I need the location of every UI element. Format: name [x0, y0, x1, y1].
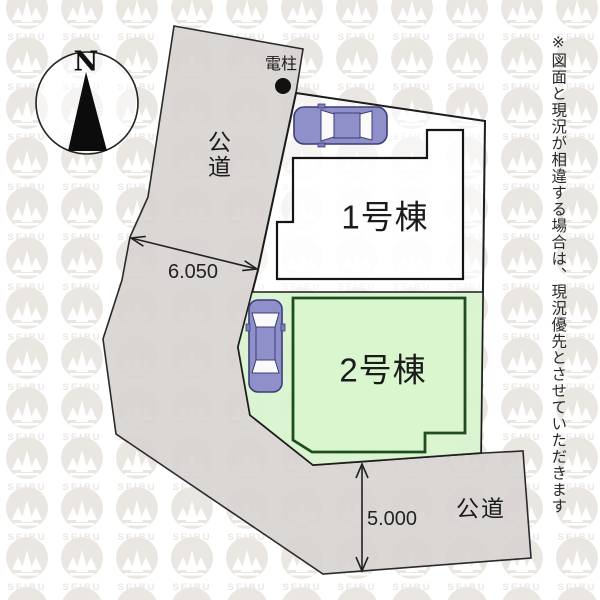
road-left-label: 公道 — [206, 130, 229, 180]
watermark-tile — [6, 487, 48, 543]
watermark-tile — [6, 237, 48, 293]
watermark-tile — [501, 137, 543, 193]
watermark-tile — [116, 0, 158, 43]
watermark-tile — [501, 237, 543, 293]
watermark-tile — [6, 137, 48, 193]
utility-pole-dot — [275, 78, 291, 94]
watermark-tile — [226, 537, 268, 593]
watermark-tile — [501, 287, 543, 343]
car-icon — [294, 104, 387, 147]
watermark-tile — [61, 237, 103, 293]
site-plan-drawing: SEIBU — [0, 0, 600, 600]
watermark-tile — [61, 337, 103, 393]
watermark-tile — [61, 187, 103, 243]
utility-pole-label: 電柱 — [265, 57, 297, 73]
compass-north-label: N — [74, 49, 99, 76]
watermark-tile — [501, 187, 543, 243]
watermark-tile — [501, 387, 543, 443]
watermark-tile — [446, 37, 488, 93]
watermark-tile — [116, 537, 158, 593]
road-bottom-label: 公道 — [456, 498, 506, 521]
watermark-tile — [6, 187, 48, 243]
watermark-tile — [171, 537, 213, 593]
watermark-tile — [501, 37, 543, 93]
watermark-tile — [6, 387, 48, 443]
watermark-tile — [6, 287, 48, 343]
watermark-tile — [6, 0, 48, 43]
watermark-tile — [116, 487, 158, 543]
watermark-tile — [336, 37, 378, 93]
watermark-tile — [6, 537, 48, 593]
watermark-tile — [6, 337, 48, 393]
watermark-tile — [61, 537, 103, 593]
dimension-6050-label: 6.050 — [168, 262, 218, 282]
watermark-tile — [501, 337, 543, 393]
watermark-tile — [6, 437, 48, 493]
watermark-tile — [281, 0, 323, 43]
watermark-tile — [391, 0, 433, 43]
watermark-tile — [61, 437, 103, 493]
site-plan: SEIBU — [0, 0, 600, 600]
disclaimer-note: ※図面と現況が相違する場合は、現況優先とさせていただきます — [548, 34, 567, 515]
building-1-label: 1号棟 — [341, 201, 428, 234]
car-icon — [246, 300, 285, 392]
watermark-tile — [391, 37, 433, 93]
watermark-tile — [336, 0, 378, 43]
watermark-tile — [61, 387, 103, 443]
dimension-5000-label: 5.000 — [367, 509, 417, 529]
watermark-tile — [61, 0, 103, 43]
watermark-tile — [501, 87, 543, 143]
watermark-tile — [556, 537, 598, 593]
watermark-tile — [501, 0, 543, 43]
watermark-tile — [446, 0, 488, 43]
watermark-tile — [61, 287, 103, 343]
building-2-label: 2号棟 — [339, 354, 426, 387]
watermark-tile — [61, 487, 103, 543]
